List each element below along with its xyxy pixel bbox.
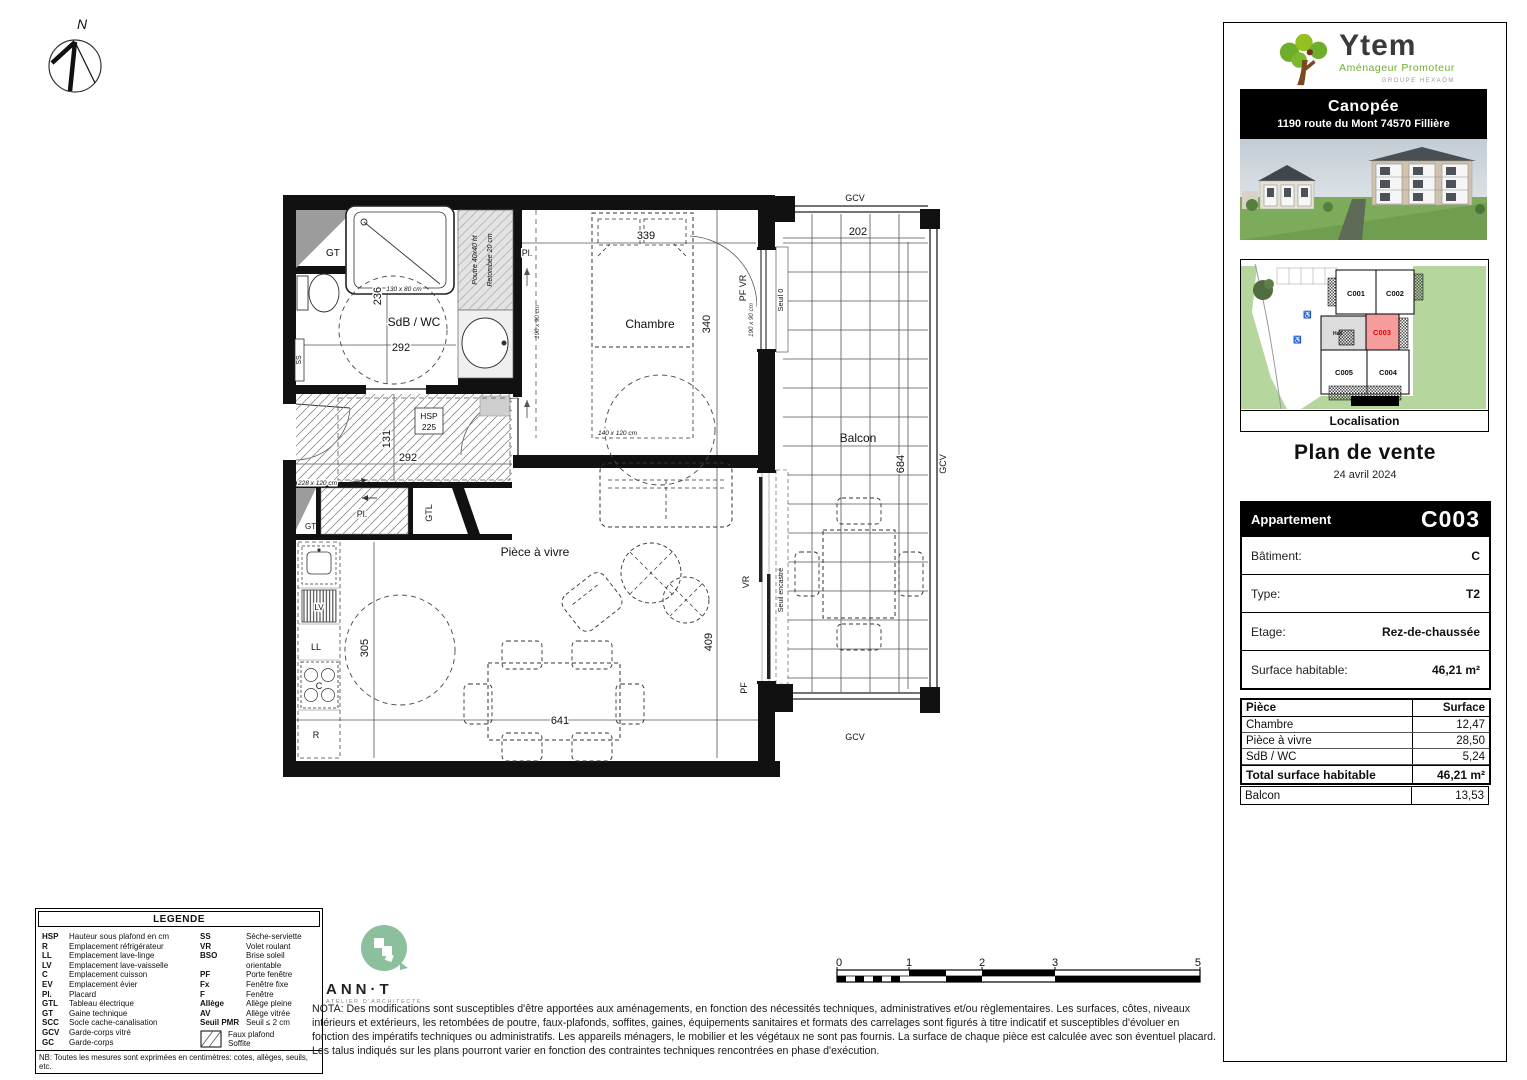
legend-item: GTGaine technique bbox=[42, 1009, 200, 1019]
gt-top-label: GT bbox=[326, 248, 340, 259]
poutre-label-2: Retombée 20 cm bbox=[487, 233, 494, 286]
brand-tagline: Aménageur Promoteur bbox=[1339, 63, 1455, 74]
scale-bar: 0 1 2 3 5 bbox=[835, 956, 1203, 990]
dim-hall-height: 131 bbox=[381, 430, 393, 448]
dim-living-height: 409 bbox=[703, 633, 715, 651]
poutre-label-1: Poutre 40x40 ht bbox=[472, 234, 479, 284]
pl-chambre-label: Pl. bbox=[522, 248, 533, 258]
legend-item: FFenêtre bbox=[200, 990, 318, 1000]
legend-item-faux-plafond: Faux plafond Soffite bbox=[200, 1030, 318, 1048]
room-label-chambre: Chambre bbox=[625, 317, 675, 331]
legend-left-column: HSPHauteur sous plafond en cm REmplaceme… bbox=[42, 932, 200, 1048]
apartment-row-surface: Surface habitable: 46,21 m² bbox=[1242, 650, 1489, 688]
gcv-top-label: GCV bbox=[845, 193, 865, 203]
legend-box: LEGENDE HSPHauteur sous plafond en cm RE… bbox=[35, 908, 323, 1074]
plan-de-vente-page: N .d{paint-order:stroke;stroke:#fff;stro… bbox=[0, 0, 1527, 1080]
hall-size-label: 228 x 120 cm bbox=[297, 480, 338, 487]
gcv-bottom-label: GCV bbox=[845, 732, 865, 742]
legend-item: AllègeAllège pleine bbox=[200, 999, 318, 1009]
map-hall-label: Hall bbox=[1333, 331, 1343, 337]
refrigerateur-label: R bbox=[313, 730, 320, 740]
pl-hall-label: Pl. bbox=[357, 509, 368, 519]
map-caption: Localisation bbox=[1241, 410, 1488, 431]
dim-hall-width: 292 bbox=[399, 452, 417, 464]
brand-name: Ytem bbox=[1339, 31, 1455, 61]
gt-bottom-label: GT bbox=[305, 522, 316, 531]
architect-name: ANN·T bbox=[326, 981, 456, 998]
surface-row-sdb: SdB / WC 5,24 bbox=[1242, 749, 1489, 765]
legend-item: Pl.Placard bbox=[42, 990, 200, 1000]
legend-item: CEmplacement cuisson bbox=[42, 970, 200, 980]
sidebar: Ytem Aménageur Promoteur GROUPE HEXAÖM C… bbox=[1223, 22, 1507, 1062]
turn-size-label: 140 x 120 cm bbox=[598, 430, 638, 437]
bedroom-window: Seuil 0 bbox=[757, 247, 788, 352]
page-date: 24 avril 2024 bbox=[1224, 469, 1506, 481]
architect-logo: ANN·T ATELIER D'ARCHITECTE bbox=[326, 924, 456, 1005]
apartment-row-etage: Etage: Rez-de-chaussée bbox=[1242, 612, 1489, 650]
shower: 130 x 80 cm bbox=[346, 206, 454, 294]
dim-chambre-height: 340 bbox=[701, 315, 713, 333]
ss-label: SS bbox=[296, 355, 303, 365]
ll-label: LL bbox=[311, 642, 321, 652]
page-title: Plan de vente bbox=[1224, 441, 1506, 465]
room-label-sdb: SdB / WC bbox=[388, 315, 441, 329]
cuisson-label: C bbox=[316, 681, 323, 691]
hatch-swatch-icon bbox=[200, 1030, 222, 1048]
compass-north-icon: N bbox=[40, 14, 114, 102]
apartment-number: C003 bbox=[1421, 506, 1480, 533]
compass-north-label: N bbox=[77, 16, 88, 32]
surfaces-header: Pièce Surface bbox=[1242, 700, 1489, 717]
towel-dryer: SS bbox=[295, 339, 304, 381]
project-photo bbox=[1240, 139, 1487, 240]
apartment-row-type: Type: T2 bbox=[1242, 574, 1489, 612]
dim-sdb-width: 292 bbox=[392, 342, 410, 354]
dishwasher-lv: LV bbox=[302, 590, 336, 622]
localisation-map: ♿ ♿ C001 C002 C003 C004 C005 Hall Locali… bbox=[1240, 259, 1489, 432]
site-plan: ♿ ♿ C001 C002 C003 C004 C005 Hall bbox=[1241, 260, 1486, 409]
legend-item: SCCSocle cache-canalisation bbox=[42, 1018, 200, 1028]
ytem-tree-icon bbox=[1275, 31, 1333, 89]
vr-living-label: VR bbox=[741, 575, 751, 588]
balcon-surface-table: Balcon 13,53 bbox=[1240, 786, 1489, 805]
room-label-balcon: Balcon bbox=[840, 431, 877, 445]
project-address: 1190 route du Mont 74570 Fillière bbox=[1277, 118, 1449, 130]
dim-sdb-height: 236 bbox=[372, 287, 384, 305]
gtl-label: GTL bbox=[424, 504, 434, 522]
legend-item: REmplacement réfrigérateur bbox=[42, 942, 200, 952]
seuil-zero-label: Seuil 0 bbox=[776, 289, 785, 312]
washbasin bbox=[458, 310, 513, 378]
legend-item: GTLTableau électrique bbox=[42, 999, 200, 1009]
legend-item: VRVolet roulant bbox=[200, 942, 318, 952]
map-unit-c005-label: C005 bbox=[1335, 368, 1353, 377]
project-name: Canopée bbox=[1328, 98, 1399, 116]
surface-row-living: Pièce à vivre 28,50 bbox=[1242, 733, 1489, 749]
gcv-right-label: GCV bbox=[938, 454, 948, 474]
legend-item: LLEmplacement lave-linge bbox=[42, 951, 200, 961]
legend-item: SSSèche-serviette bbox=[200, 932, 318, 942]
legend-item: GCVGarde-corps vitré bbox=[42, 1028, 200, 1038]
bed-size-right-label: 190 x 90 cm bbox=[748, 303, 755, 337]
legend-item: AVAllège vitrée bbox=[200, 1009, 318, 1019]
shower-size-label: 130 x 80 cm bbox=[386, 286, 422, 293]
dim-balcon-height: 684 bbox=[895, 455, 907, 473]
bed-size-left-label: 190 x 90 cm bbox=[534, 305, 541, 339]
map-unit-c001-label: C001 bbox=[1347, 289, 1365, 298]
dim-balcon-width: 202 bbox=[849, 226, 867, 238]
floor-plan: .d{paint-order:stroke;stroke:#fff;stroke… bbox=[280, 192, 970, 804]
pf-living-label: PF bbox=[739, 682, 749, 694]
room-label-living: Pièce à vivre bbox=[501, 545, 570, 559]
brand-group: GROUPE HEXAÖM bbox=[1339, 78, 1455, 84]
accessibility-icon: ♿ bbox=[1293, 335, 1302, 344]
annt-logo-icon bbox=[356, 924, 412, 974]
legend-item: PFPorte fenêtre bbox=[200, 970, 318, 980]
legend-item: HSPHauteur sous plafond en cm bbox=[42, 932, 200, 942]
dim-living-width: 641 bbox=[551, 715, 569, 727]
living-window: Seuil encastré bbox=[757, 470, 788, 684]
apartment-header: Appartement C003 bbox=[1242, 503, 1489, 536]
map-unit-c004-label: C004 bbox=[1379, 368, 1398, 377]
pf-vr-label: PF VR bbox=[738, 274, 748, 301]
legend-nb-note: NB: Toutes les mesures sont exprimées en… bbox=[36, 1050, 322, 1073]
lv-label: LV bbox=[314, 603, 324, 612]
legend-item: BSOBrise soleil orientable bbox=[200, 951, 318, 970]
surface-total-row: Total surface habitable 46,21 m² bbox=[1242, 765, 1489, 783]
apartment-header-label: Appartement bbox=[1251, 512, 1331, 527]
hsp-abbr-label: HSP bbox=[420, 411, 438, 421]
poutre-strip: Poutre 40x40 ht Retombée 20 cm bbox=[458, 210, 513, 310]
map-unit-c002-label: C002 bbox=[1386, 289, 1404, 298]
nota-text: NOTA: Des modifications sont susceptible… bbox=[312, 1002, 1218, 1058]
brand-block: Ytem Aménageur Promoteur GROUPE HEXAÖM bbox=[1224, 29, 1506, 89]
legend-item: GCGarde-corps bbox=[42, 1038, 200, 1048]
map-unit-c003-label: C003 bbox=[1373, 328, 1391, 337]
surface-row-balcon: Balcon 13,53 bbox=[1241, 787, 1488, 804]
entrance-hall: HSP 225 131 292 228 x 120 cm bbox=[296, 394, 512, 487]
accessibility-icon: ♿ bbox=[1303, 310, 1312, 319]
apartment-table: Appartement C003 Bâtiment: C Type: T2 Et… bbox=[1240, 501, 1491, 690]
dim-chambre-width: 339 bbox=[637, 230, 655, 242]
toilet bbox=[297, 274, 339, 312]
legend-item: EVEmplacement évier bbox=[42, 980, 200, 990]
seuil-encastre-label: Seuil encastré bbox=[778, 568, 785, 612]
legend-item: FxFenêtre fixe bbox=[200, 980, 318, 990]
apartment-row-batiment: Bâtiment: C bbox=[1242, 536, 1489, 574]
legend-title: LEGENDE bbox=[38, 911, 320, 927]
legend-item: LVEmplacement lave-vaisselle bbox=[42, 961, 200, 971]
project-banner: Canopée 1190 route du Mont 74570 Fillièr… bbox=[1240, 89, 1487, 139]
legend-right-column: SSSèche-serviette VRVolet roulant BSOBri… bbox=[200, 932, 318, 1048]
surfaces-table: Pièce Surface Chambre 12,47 Pièce à vivr… bbox=[1240, 698, 1491, 785]
surface-row-chambre: Chambre 12,47 bbox=[1242, 717, 1489, 733]
dim-kitchen-height: 305 bbox=[359, 639, 371, 657]
legend-item: Seuil PMRSeuil ≤ 2 cm bbox=[200, 1018, 318, 1028]
hsp-value-label: 225 bbox=[422, 422, 436, 432]
